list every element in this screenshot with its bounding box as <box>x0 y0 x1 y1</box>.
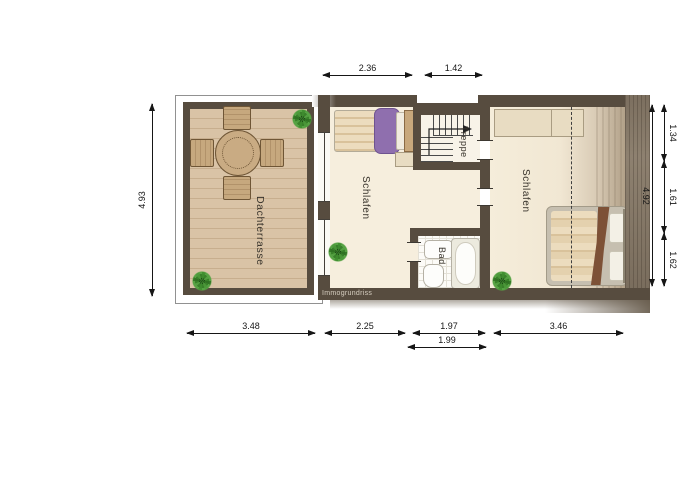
corner-shadow <box>545 300 650 313</box>
bathroom-left-wall-lower <box>410 262 418 288</box>
left-wall-segment-2 <box>318 200 330 219</box>
plant-icon <box>291 108 313 130</box>
dimension-bottom-2: 2.25 <box>325 333 405 334</box>
chair-left <box>190 139 214 167</box>
double-bed <box>546 206 628 286</box>
stairs-direction-arrow-icon <box>421 115 480 162</box>
chair-right <box>260 139 284 167</box>
toilet <box>423 264 444 288</box>
bathtub-basin <box>455 242 476 285</box>
double-bed-mattress <box>551 211 597 281</box>
room-label-schlafen-right: Schlafen <box>520 169 531 213</box>
dimension-bottom-4: 3.46 <box>494 333 623 334</box>
plant-icon <box>191 270 213 292</box>
dimension-value: 2.25 <box>325 321 405 331</box>
room-label-schlafen-middle: Schlafen <box>360 176 371 220</box>
dining-table <box>215 130 261 176</box>
single-bed <box>334 110 412 150</box>
dimension-bottom-secondary: 1.99 <box>408 347 486 348</box>
dimension-right-seg-2: 1.61 <box>664 161 665 233</box>
watermark: Immogrundriss <box>322 290 372 297</box>
dimension-value: 4.93 <box>137 178 147 222</box>
dimension-value: 1.61 <box>668 188 678 206</box>
dimension-value: 4.92 <box>641 187 651 205</box>
dimension-value: 1.42 <box>425 63 482 73</box>
stairs-left-wall <box>413 107 421 170</box>
plant-icon <box>491 270 513 292</box>
dimension-right-seg-1: 1.34 <box>664 105 665 161</box>
wardrobe-divider <box>551 110 552 136</box>
terrace-door-window-1 <box>318 132 330 202</box>
room-label-treppe: Treppe <box>459 126 469 158</box>
knee-wall-dashed-line <box>571 107 572 288</box>
stairs-bottom-wall <box>413 162 490 170</box>
chair-top <box>223 106 251 130</box>
bathroom-top-wall <box>410 228 490 236</box>
chair-bottom <box>223 176 251 200</box>
dimension-bottom-3: 1.97 <box>413 333 485 334</box>
divider-wall-segment-2 <box>480 160 490 188</box>
dimension-bottom-1: 3.48 <box>187 333 315 334</box>
room-label-dachterrasse: Dachterrasse <box>254 196 266 266</box>
dimension-value: 1.99 <box>408 335 486 345</box>
divider-wall-segment-1 <box>480 107 490 140</box>
dimension-value: 1.97 <box>413 321 485 331</box>
bathroom-left-wall-upper <box>410 228 418 242</box>
dimension-value: 3.46 <box>494 321 623 331</box>
plant-icon <box>327 241 349 263</box>
floorplan-page: { "plan": { "watermark": "Immogrundriss"… <box>0 0 700 500</box>
dimension-top-1: 2.36 <box>323 75 412 76</box>
left-wall-segment-1 <box>318 95 330 132</box>
dimension-value: 3.48 <box>187 321 315 331</box>
glazing-line <box>324 220 325 275</box>
door-tick <box>407 242 421 243</box>
dimension-right-seg-3: 1.62 <box>664 233 665 286</box>
door-tick <box>477 159 493 160</box>
nightstand <box>395 152 415 167</box>
bathtub <box>451 238 480 289</box>
door-tick <box>477 140 493 141</box>
dimension-value: 1.34 <box>668 124 678 142</box>
dimension-value: 2.36 <box>323 63 412 73</box>
glazing-line <box>324 133 325 201</box>
divider-wall-segment-3 <box>480 206 490 288</box>
dimension-value: 1.62 <box>668 251 678 269</box>
dimension-right-overall: 4.92 <box>652 105 653 286</box>
door-tick <box>477 205 493 206</box>
top-wall-stair-notch <box>415 103 480 115</box>
dimension-top-2: 1.42 <box>425 75 482 76</box>
door-tick <box>477 188 493 189</box>
dimension-left: 4.93 <box>152 104 153 296</box>
door-tick <box>407 261 421 262</box>
room-label-bad: Bad <box>437 247 447 265</box>
